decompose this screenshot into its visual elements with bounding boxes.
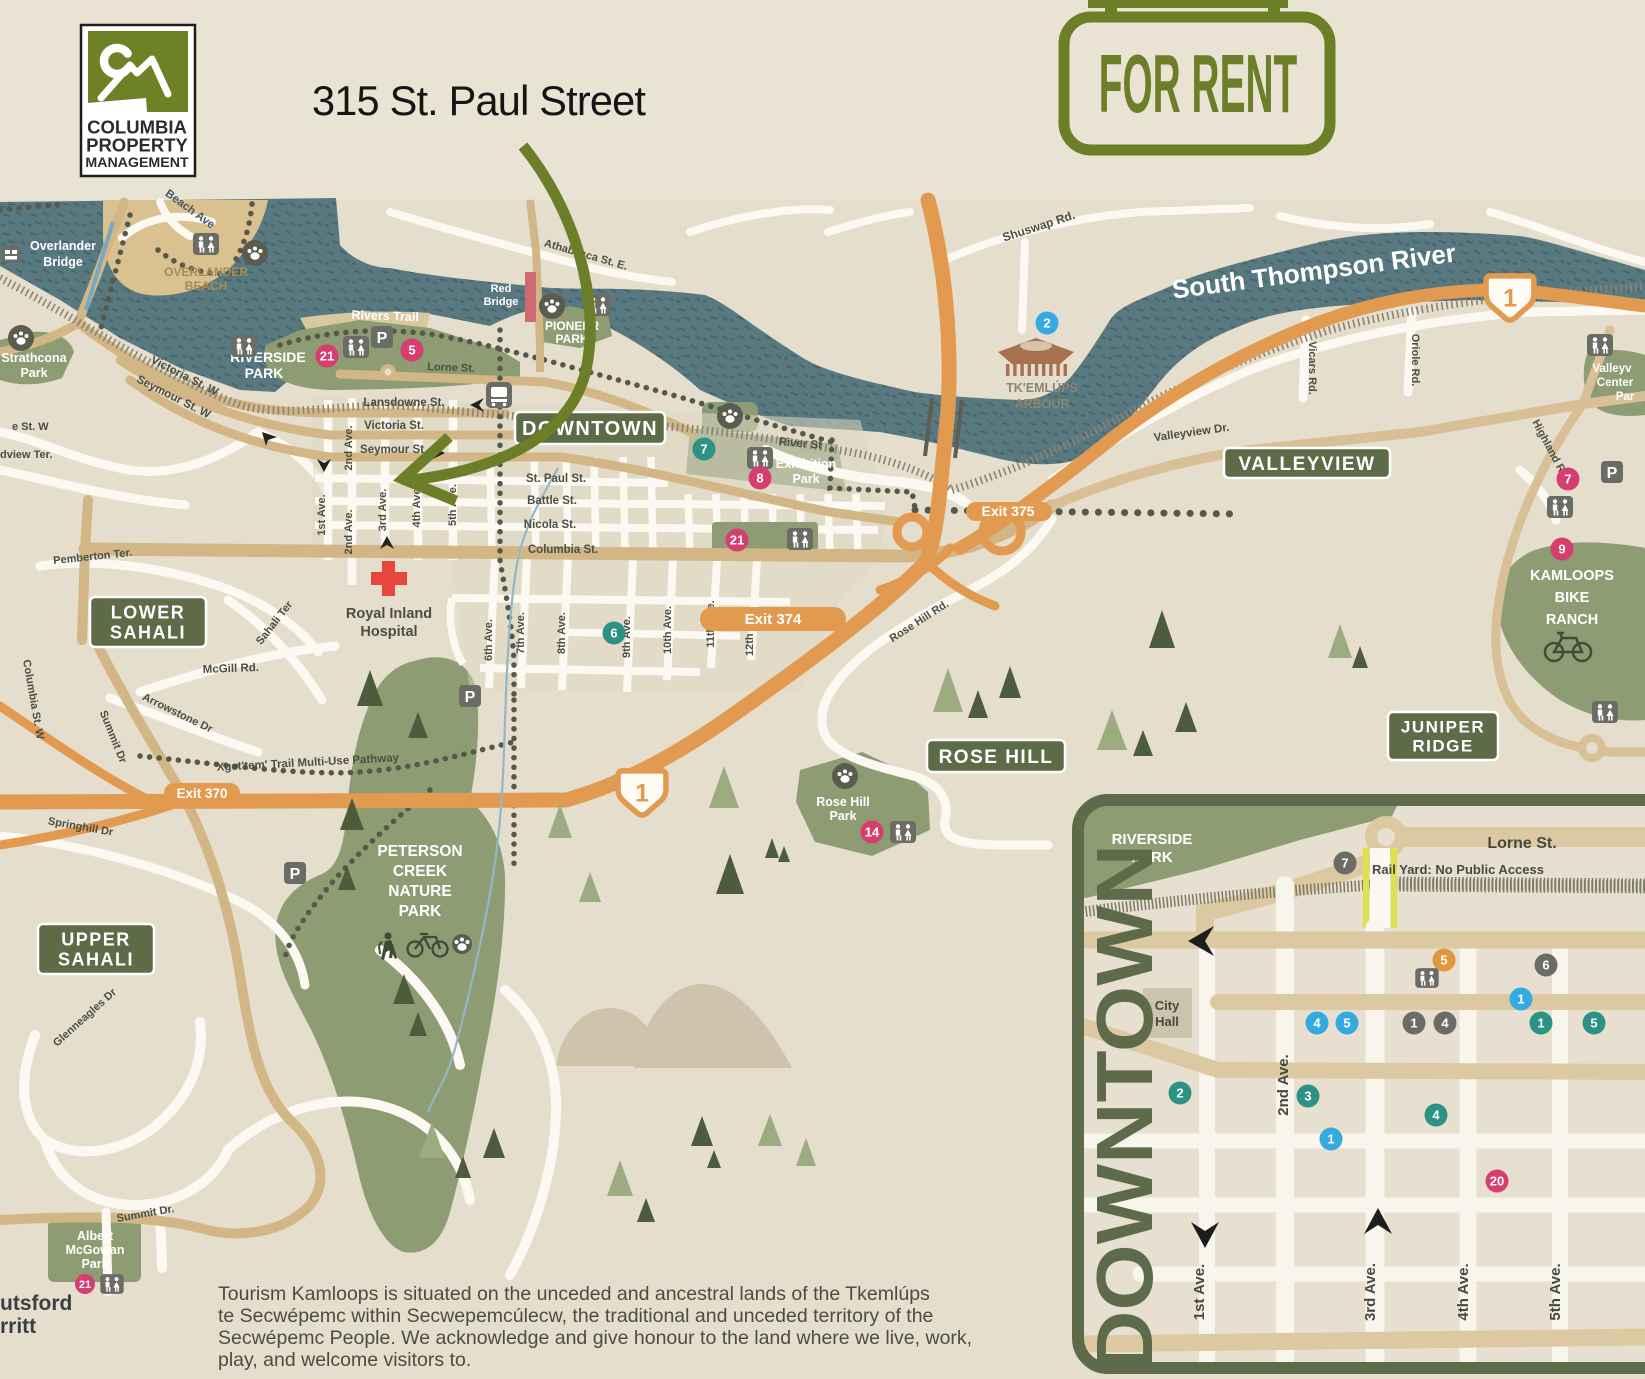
- svg-text:OVERLANDER: OVERLANDER: [164, 265, 248, 279]
- svg-text:RANCH: RANCH: [1546, 612, 1598, 628]
- svg-text:7: 7: [1564, 472, 1571, 487]
- svg-text:Park: Park: [792, 472, 819, 486]
- svg-text:5: 5: [1590, 1016, 1597, 1031]
- svg-text:20: 20: [1490, 1174, 1504, 1189]
- svg-text:ARBOUR: ARBOUR: [1015, 397, 1070, 411]
- svg-text:1: 1: [1410, 1016, 1417, 1031]
- svg-text:2nd Ave.: 2nd Ave.: [343, 425, 355, 470]
- svg-text:Bridge: Bridge: [43, 255, 83, 269]
- svg-text:1st Ave.: 1st Ave.: [1191, 1264, 1208, 1320]
- svg-text:P: P: [465, 689, 476, 706]
- svg-text:1st Ave.: 1st Ave.: [316, 494, 328, 535]
- svg-text:Overlander: Overlander: [30, 239, 96, 253]
- svg-text:5: 5: [1343, 1016, 1350, 1031]
- svg-text:rritt: rritt: [0, 1315, 36, 1338]
- svg-text:dview Ter.: dview Ter.: [0, 449, 52, 461]
- svg-text:6: 6: [610, 626, 617, 641]
- svg-text:8th Ave.: 8th Ave.: [556, 612, 568, 654]
- svg-text:PARK: PARK: [399, 903, 443, 920]
- svg-text:2: 2: [1176, 1086, 1183, 1101]
- svg-text:4th Ave.: 4th Ave.: [1455, 1263, 1472, 1320]
- svg-text:Seymour St: Seymour St: [360, 444, 424, 456]
- svg-text:McGill Rd.: McGill Rd.: [203, 662, 260, 676]
- svg-text:Red: Red: [491, 283, 512, 295]
- svg-text:ROSE HILL: ROSE HILL: [939, 747, 1054, 768]
- svg-text:Lorne St.: Lorne St.: [427, 361, 475, 375]
- svg-text:2nd Ave.: 2nd Ave.: [343, 509, 355, 554]
- svg-text:Oriole Rd.: Oriole Rd.: [1409, 334, 1421, 387]
- svg-text:1: 1: [1537, 1016, 1544, 1031]
- svg-text:Vicars Rd.: Vicars Rd.: [1306, 341, 1318, 395]
- svg-text:Royal Inland: Royal Inland: [346, 606, 432, 622]
- svg-text:Exit 375: Exit 375: [982, 503, 1035, 519]
- svg-text:MANAGEMENT: MANAGEMENT: [85, 155, 189, 171]
- svg-text:PETERSON: PETERSON: [377, 843, 462, 860]
- svg-text:LOWER: LOWER: [111, 602, 186, 622]
- svg-text:4: 4: [1313, 1016, 1321, 1031]
- svg-text:7: 7: [700, 442, 707, 457]
- svg-text:Secwépemc People. We acknowled: Secwépemc People. We acknowledge and giv…: [218, 1327, 972, 1349]
- svg-text:21: 21: [730, 533, 744, 548]
- svg-text:1: 1: [1517, 992, 1524, 1007]
- svg-text:SAHALI: SAHALI: [58, 949, 134, 969]
- svg-text:JUNIPER: JUNIPER: [1401, 718, 1485, 737]
- svg-text:BIKE: BIKE: [1555, 590, 1590, 606]
- svg-text:UPPER: UPPER: [61, 929, 131, 949]
- svg-text:McGowan: McGowan: [65, 1243, 124, 1257]
- svg-text:6: 6: [1542, 958, 1549, 973]
- svg-text:PARK: PARK: [555, 332, 588, 346]
- svg-text:SAHALI: SAHALI: [110, 622, 186, 642]
- svg-text:4: 4: [1441, 1016, 1449, 1031]
- svg-text:Park: Park: [829, 809, 856, 823]
- svg-text:9: 9: [1558, 542, 1565, 557]
- svg-text:Rose Hill: Rose Hill: [816, 795, 870, 809]
- svg-text:8: 8: [756, 471, 763, 486]
- svg-text:TK'EMLÚPS: TK'EMLÚPS: [1006, 380, 1078, 395]
- svg-text:Exit 374: Exit 374: [745, 611, 802, 628]
- svg-text:5: 5: [1440, 953, 1447, 968]
- svg-text:KAMLOOPS: KAMLOOPS: [1530, 568, 1614, 584]
- svg-text:3rd Ave.: 3rd Ave.: [1362, 1263, 1379, 1321]
- svg-text:RIDGE: RIDGE: [1412, 737, 1473, 756]
- svg-text:Columbia St.: Columbia St.: [528, 544, 598, 556]
- svg-text:utsford: utsford: [0, 1292, 72, 1315]
- svg-text:te Secwépemc within Secwepemcú: te Secwépemc within Secwepemcúlecw, the …: [218, 1305, 933, 1327]
- svg-text:1: 1: [1503, 285, 1517, 312]
- svg-text:Nicola St.: Nicola St.: [524, 519, 576, 531]
- svg-text:Albert: Albert: [77, 1229, 114, 1243]
- svg-text:VALLEYVIEW: VALLEYVIEW: [1238, 454, 1375, 475]
- svg-text:Battle St.: Battle St.: [527, 495, 577, 507]
- svg-text:FOR RENT: FOR RENT: [1099, 36, 1298, 129]
- svg-text:Park: Park: [20, 366, 47, 380]
- svg-text:Exit 370: Exit 370: [176, 786, 227, 801]
- svg-text:10th Ave.: 10th Ave.: [662, 606, 674, 654]
- svg-text:BEACH: BEACH: [185, 279, 228, 293]
- svg-text:PROPERTY: PROPERTY: [86, 135, 188, 156]
- svg-text:P: P: [377, 330, 388, 347]
- svg-text:Hospital: Hospital: [360, 624, 417, 640]
- svg-text:4th Ave: 4th Ave: [411, 489, 423, 528]
- svg-text:Strathcona: Strathcona: [1, 351, 67, 365]
- svg-text:Lansdowne St.: Lansdowne St.: [363, 397, 444, 409]
- svg-text:2nd Ave.: 2nd Ave.: [1275, 1054, 1292, 1115]
- svg-text:5th Ave.: 5th Ave.: [1547, 1263, 1564, 1320]
- svg-text:play, and welcome visitors to.: play, and welcome visitors to.: [218, 1349, 471, 1371]
- svg-text:St. Paul St.: St. Paul St.: [526, 473, 586, 485]
- svg-text:5: 5: [408, 343, 415, 358]
- svg-text:Rivers Trail: Rivers Trail: [351, 308, 419, 324]
- svg-text:4: 4: [1432, 1108, 1440, 1123]
- svg-text:Lorne St.: Lorne St.: [1487, 835, 1556, 852]
- svg-text:2: 2: [1043, 316, 1050, 331]
- svg-text:Tourism Kamloops is situated o: Tourism Kamloops is situated on the unce…: [218, 1283, 930, 1305]
- svg-text:P: P: [1607, 465, 1618, 482]
- svg-text:P: P: [290, 866, 301, 883]
- svg-text:Park: Park: [81, 1257, 108, 1271]
- svg-text:Center: Center: [1597, 377, 1634, 389]
- svg-text:3rd Ave.: 3rd Ave.: [377, 489, 389, 532]
- svg-text:6th Ave.: 6th Ave.: [483, 619, 495, 661]
- svg-text:21: 21: [320, 349, 334, 364]
- svg-text:1: 1: [635, 780, 649, 807]
- svg-text:e St. W: e St. W: [12, 421, 49, 433]
- svg-text:Valleyv: Valleyv: [1592, 363, 1632, 375]
- svg-text:Bridge: Bridge: [484, 296, 519, 308]
- svg-text:Rail Yard: No Public Access: Rail Yard: No Public Access: [1372, 862, 1544, 877]
- svg-text:7: 7: [1341, 856, 1348, 871]
- svg-text:21: 21: [79, 1279, 91, 1291]
- svg-text:Exhibition: Exhibition: [776, 457, 836, 471]
- svg-text:315 St. Paul Street: 315 St. Paul Street: [312, 77, 646, 124]
- svg-text:14: 14: [865, 825, 880, 840]
- svg-text:DOWNTOWN: DOWNTOWN: [1080, 844, 1169, 1372]
- svg-text:1: 1: [1327, 1132, 1334, 1147]
- svg-text:7th Ave.: 7th Ave.: [515, 612, 527, 654]
- svg-text:PARK: PARK: [245, 365, 284, 381]
- svg-text:NATURE: NATURE: [388, 883, 451, 900]
- svg-text:Victoria St.: Victoria St.: [364, 420, 424, 432]
- svg-text:3: 3: [1304, 1089, 1311, 1104]
- svg-text:Par: Par: [1616, 391, 1635, 403]
- svg-text:CREEK: CREEK: [393, 863, 448, 880]
